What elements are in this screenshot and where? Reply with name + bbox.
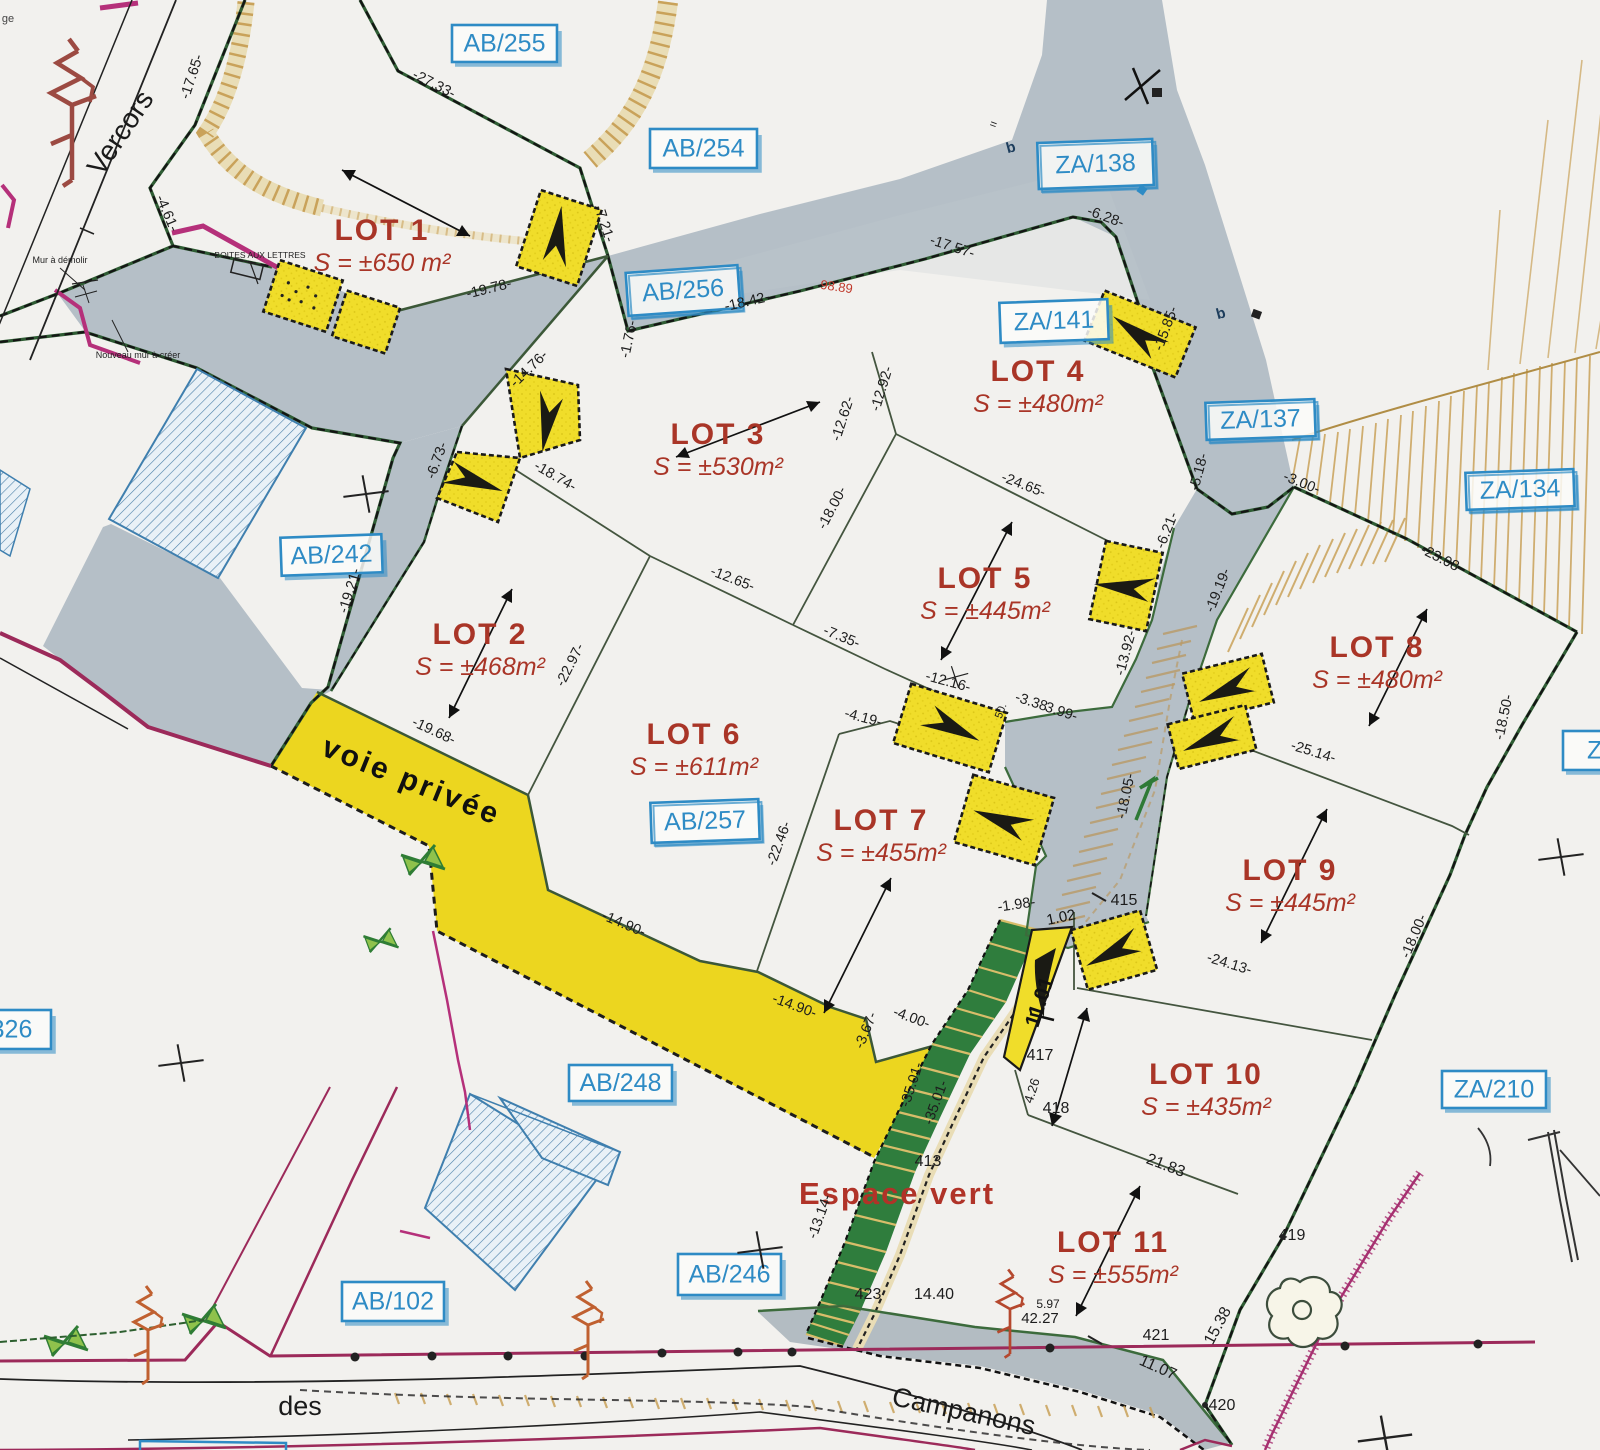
svg-text:AB/257: AB/257	[664, 806, 747, 837]
svg-text:Nouveau mur à créer: Nouveau mur à créer	[96, 350, 181, 360]
svg-text:417: 417	[1027, 1047, 1054, 1064]
svg-text:LOT 1: LOT 1	[334, 214, 429, 247]
svg-text:AB/242: AB/242	[290, 540, 373, 571]
svg-text:ZA/134: ZA/134	[1479, 474, 1561, 505]
svg-text:ge: ge	[2, 13, 14, 25]
svg-text:AB/254: AB/254	[662, 135, 744, 163]
svg-text:418: 418	[1043, 1100, 1070, 1117]
svg-text:ZA/141: ZA/141	[1013, 306, 1095, 337]
svg-text:des: des	[278, 1391, 322, 1421]
svg-text:423: 423	[855, 1286, 882, 1303]
svg-text:420: 420	[1209, 1397, 1236, 1414]
svg-text:S = ±445m²: S = ±445m²	[920, 597, 1051, 625]
svg-text:AB/255: AB/255	[463, 30, 545, 58]
svg-text:AB/102: AB/102	[352, 1288, 434, 1316]
svg-text:S = ±530m²: S = ±530m²	[653, 453, 784, 481]
svg-text:LOT 6: LOT 6	[646, 718, 741, 751]
svg-text:LOT 2: LOT 2	[432, 618, 527, 651]
svg-text:S = ±435m²: S = ±435m²	[1141, 1093, 1272, 1121]
svg-text:AB/256: AB/256	[641, 274, 725, 308]
svg-text:S = ±480m²: S = ±480m²	[973, 390, 1104, 418]
svg-text:LOT 3: LOT 3	[670, 418, 765, 451]
svg-text:LOT 5: LOT 5	[937, 562, 1032, 595]
svg-text:LOT 10: LOT 10	[1149, 1058, 1263, 1091]
svg-text:S = ±468m²: S = ±468m²	[415, 653, 546, 681]
svg-text:AB/246: AB/246	[688, 1261, 770, 1289]
svg-text:S = ±480m²: S = ±480m²	[1312, 666, 1443, 694]
svg-text:413: 413	[915, 1153, 942, 1170]
svg-text:S = ±455m²: S = ±455m²	[816, 839, 947, 867]
svg-text:S = ±555m²: S = ±555m²	[1048, 1261, 1179, 1289]
svg-text:LOT 8: LOT 8	[1329, 631, 1424, 664]
svg-text:326: 326	[0, 1016, 32, 1044]
svg-text:ZA/210: ZA/210	[1454, 1076, 1535, 1104]
svg-text:14.40: 14.40	[914, 1286, 954, 1303]
svg-text:S = ±445m²: S = ±445m²	[1225, 889, 1356, 917]
svg-text:LOT 4: LOT 4	[990, 355, 1085, 388]
svg-text:BOITES AUX LETTRES: BOITES AUX LETTRES	[214, 250, 305, 260]
svg-text:415: 415	[1111, 892, 1138, 909]
svg-text:ZA/138: ZA/138	[1055, 149, 1137, 180]
svg-text:LOT 11: LOT 11	[1057, 1226, 1169, 1259]
svg-text:421: 421	[1143, 1327, 1170, 1344]
svg-text:42.27: 42.27	[1021, 1310, 1059, 1327]
svg-text:ZA/: ZA/	[1587, 737, 1600, 765]
svg-text:Mur à démolir: Mur à démolir	[32, 255, 87, 265]
svg-text:5.97: 5.97	[1036, 1297, 1060, 1311]
svg-text:S = ±611m²: S = ±611m²	[630, 753, 760, 781]
svg-text:AB/248: AB/248	[579, 1069, 661, 1097]
svg-text:LOT 7: LOT 7	[833, 804, 928, 837]
svg-text:S = ±650 m²: S = ±650 m²	[314, 249, 452, 277]
svg-text:ZA/137: ZA/137	[1220, 404, 1302, 435]
svg-text:LOT 9: LOT 9	[1242, 854, 1337, 887]
